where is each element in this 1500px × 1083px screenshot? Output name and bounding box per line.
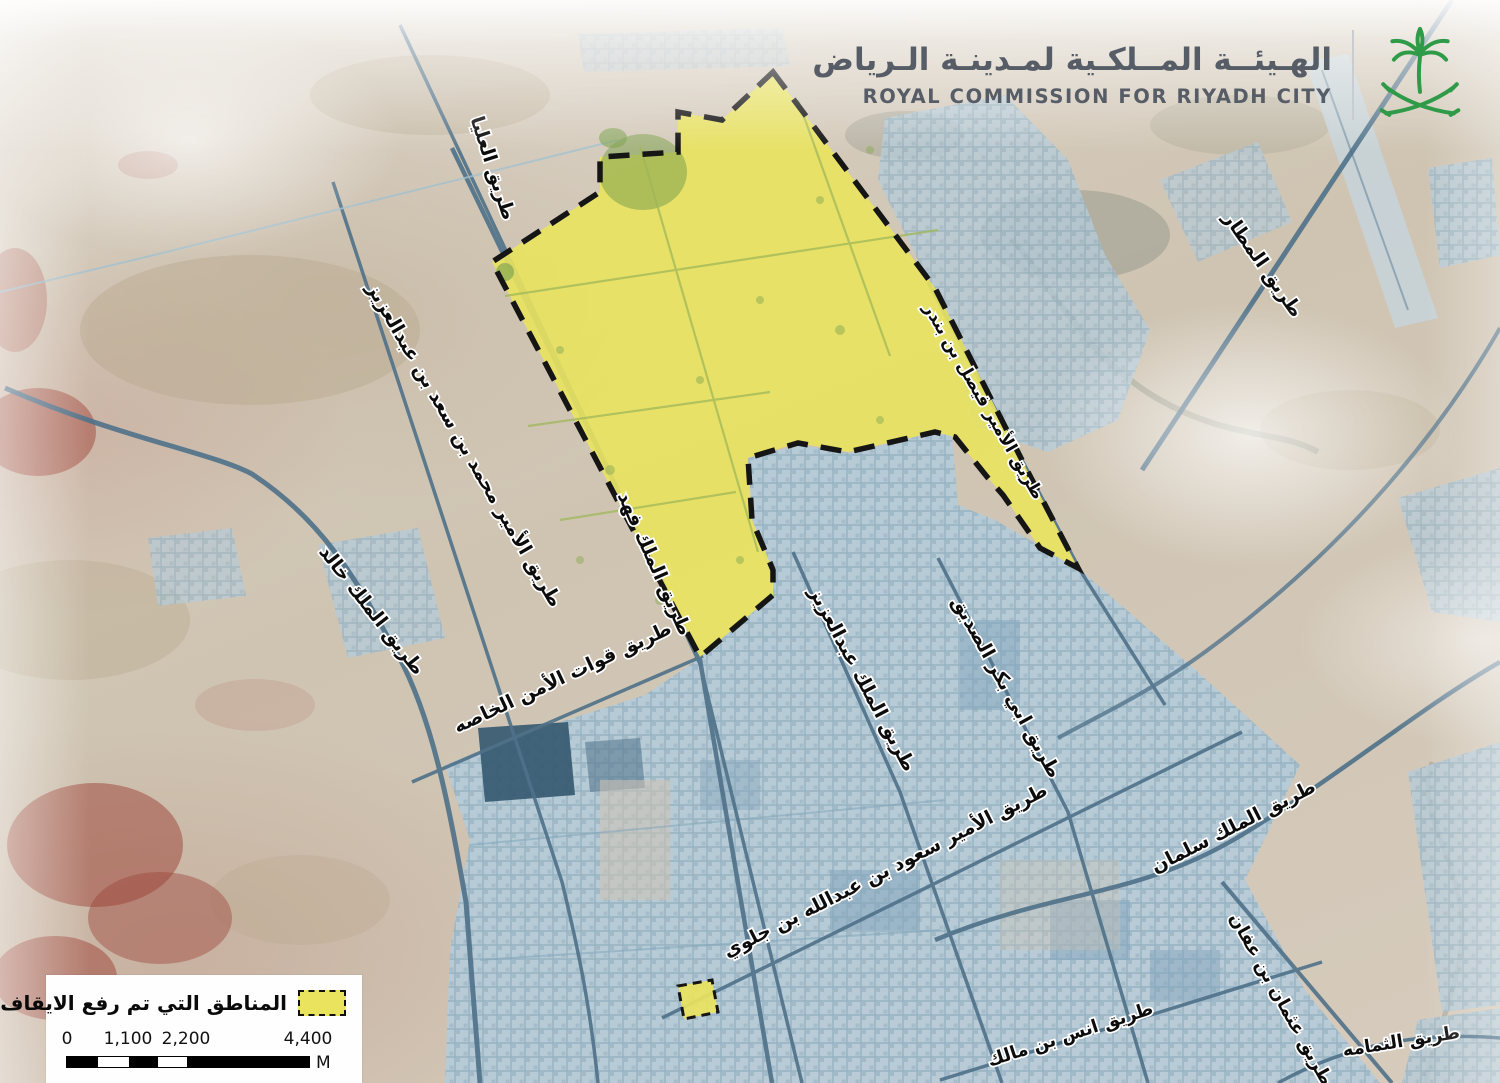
- legend-yellow-swatch: [298, 990, 346, 1016]
- saudi-palm-swords-emblem: [1374, 24, 1466, 126]
- scale-unit: M: [316, 1053, 331, 1073]
- header: الهـيئــة المــلكـية لمـدينـة الـرياض RO…: [812, 24, 1466, 126]
- legend-row: المناطق التي تم رفع الايقاف عنها: [0, 990, 346, 1016]
- scale-segment: [187, 1057, 309, 1067]
- org-titles: الهـيئــة المــلكـية لمـدينـة الـرياض RO…: [812, 42, 1332, 108]
- scale-segment: [67, 1057, 98, 1067]
- scale-tick-0: 0: [62, 1029, 73, 1049]
- released-parcel-small: [678, 980, 718, 1019]
- scale-segment: [129, 1057, 158, 1067]
- header-divider: [1352, 30, 1354, 120]
- org-title-english: ROYAL COMMISSION FOR RIYADH CITY: [812, 85, 1332, 108]
- satellite-map-art: طريق العلياطريق الأمير محمد بن سعد بن عب…: [0, 0, 1500, 1083]
- scale-tick-1100: 1,100: [104, 1029, 153, 1049]
- scale-tick-4400: 4,400: [284, 1029, 333, 1049]
- scale-bar: 0 1,100 2,200 4,400 M: [46, 1027, 362, 1083]
- scale-bar-track: [66, 1056, 310, 1068]
- scale-segment: [98, 1057, 129, 1067]
- scale-segment: [158, 1057, 187, 1067]
- legend: المناطق التي تم رفع الايقاف عنها 0 1,100…: [46, 975, 362, 1083]
- olaya-road-label: طريق العليا: [466, 114, 520, 223]
- org-title-arabic: الهـيئــة المــلكـية لمـدينـة الـرياض: [812, 42, 1332, 78]
- legend-label: المناطق التي تم رفع الايقاف عنها: [0, 991, 287, 1015]
- map-canvas: طريق العلياطريق الأمير محمد بن سعد بن عب…: [0, 0, 1500, 1083]
- scale-tick-2200: 2,200: [162, 1029, 211, 1049]
